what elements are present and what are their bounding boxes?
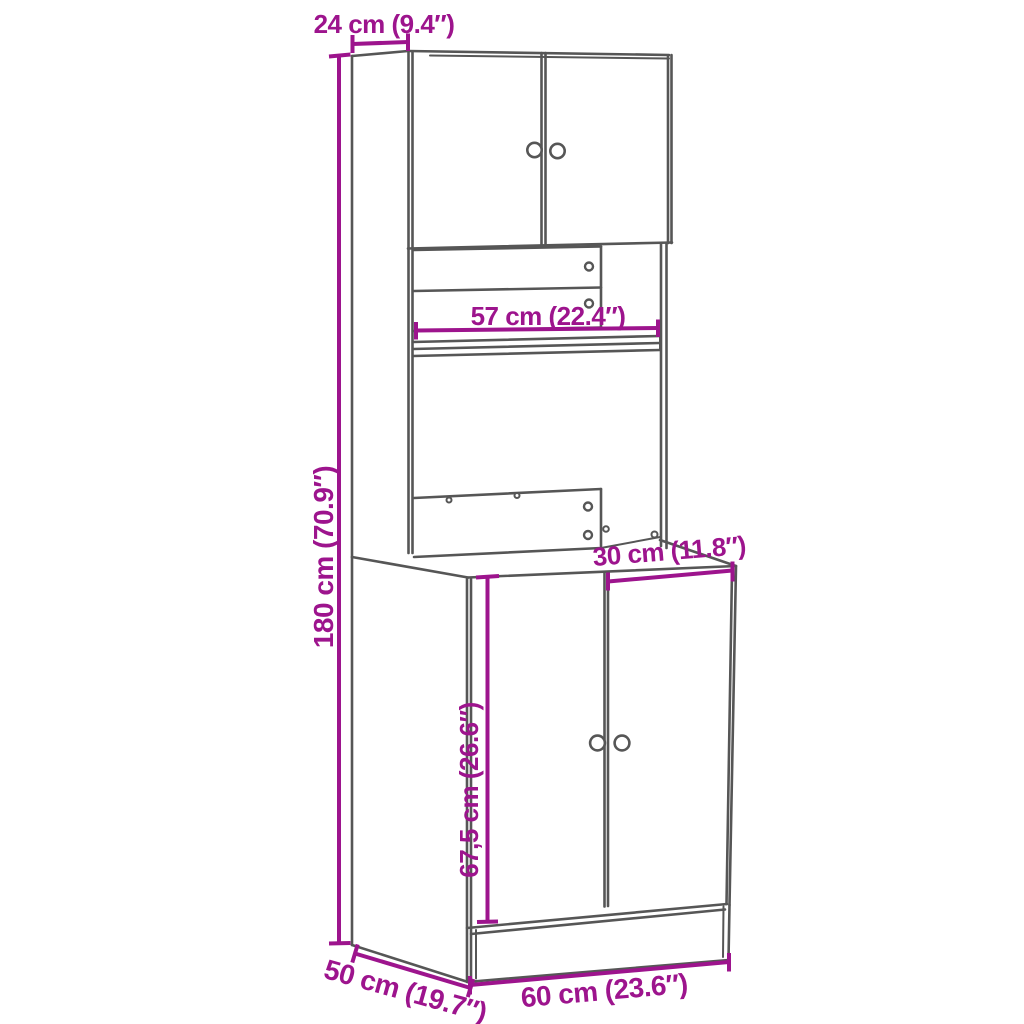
dimension-lower-door-height: 67,5 cm (26.6″) xyxy=(454,576,499,922)
screw-icon xyxy=(447,498,452,503)
screw-icon xyxy=(585,263,593,271)
upper-cabinet xyxy=(408,51,672,249)
dim-tick xyxy=(329,943,351,944)
hutch-left-side-panel xyxy=(352,51,413,557)
dim-line xyxy=(353,42,409,44)
niche-shelf xyxy=(413,336,660,356)
dim-label-top-depth: 24 cm (9.4″) xyxy=(314,9,455,39)
screw-icon xyxy=(603,526,609,532)
plinth-top-edge xyxy=(471,910,725,935)
upper-cabinet-top-edge xyxy=(408,51,669,55)
dim-line xyxy=(608,571,733,582)
dimension-depth: 50 cm (19.7″) xyxy=(321,944,490,1024)
upper-cabinet-top-board-edge xyxy=(430,56,669,59)
plinth-right-recess-edge xyxy=(723,907,724,958)
dimension-counter-depth: 30 cm (11.8″) xyxy=(592,530,747,590)
lower-door-bottom-edge xyxy=(467,904,727,928)
dim-tick xyxy=(476,576,499,578)
lower-back-panel-top-edge xyxy=(414,489,601,498)
lower-left-door-handle-icon xyxy=(590,736,605,751)
screw-icon xyxy=(515,493,520,498)
cabinet-dimension-diagram: 24 cm (9.4″) 180 cm (70.9″) 57 cm (22.4″… xyxy=(0,0,1024,1024)
dim-label-depth: 50 cm (19.7″) xyxy=(321,954,490,1024)
hutch-right-side-panel xyxy=(661,243,667,548)
dimension-total-height: 180 cm (70.9″) xyxy=(308,55,351,944)
countertop-left-edge xyxy=(352,557,468,578)
lower-cabinet xyxy=(352,557,736,982)
lower-right-door-handle-icon xyxy=(615,736,630,751)
left-panel-top-edge xyxy=(352,51,408,56)
screw-icon xyxy=(584,531,592,539)
lower-doors xyxy=(467,567,736,929)
dim-label-lower-door-height: 67,5 cm (26.6″) xyxy=(454,702,484,878)
dim-tick xyxy=(477,922,498,923)
dim-label-total-height: 180 cm (70.9″) xyxy=(308,466,339,648)
dim-label-niche-width: 57 cm (22.4″) xyxy=(471,301,626,331)
shelf-front-top-edge xyxy=(413,343,660,349)
upper-right-door-handle-icon xyxy=(550,144,564,158)
upper-left-door-handle-icon xyxy=(527,143,541,157)
shelf-top-edge xyxy=(413,336,660,342)
lower-back-panel-bottom-edge xyxy=(414,548,601,557)
diagram-canvas: 24 cm (9.4″) 180 cm (70.9″) 57 cm (22.4″… xyxy=(0,0,1024,1024)
dimension-top-depth: 24 cm (9.4″) xyxy=(314,9,455,53)
right-foot-outer-edge xyxy=(729,905,730,960)
strip-middle-edge xyxy=(414,288,601,292)
screw-icon xyxy=(584,503,592,511)
dimension-niche-width: 57 cm (22.4″) xyxy=(416,301,658,340)
shelf-front-bottom-edge xyxy=(413,350,660,356)
dim-tick xyxy=(329,55,351,57)
